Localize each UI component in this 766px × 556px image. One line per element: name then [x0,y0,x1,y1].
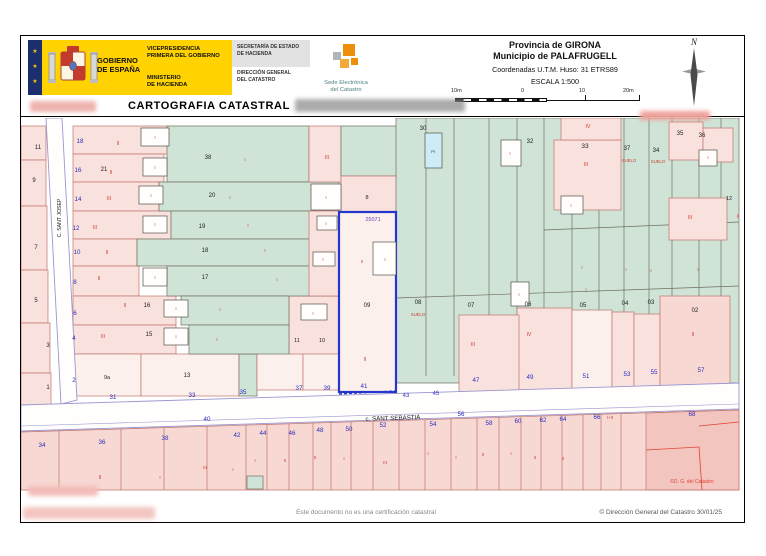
street-number-label: 34 [39,442,46,449]
street-number-label: 10 [74,249,81,256]
construction-label: I [625,267,626,272]
secretaria-estado-label: SECRETARÍA DE ESTADODE HACIENDA [232,40,310,67]
redacted-text [295,99,465,112]
parcel-ref: 25071 [365,217,380,223]
street-number-label: 48 [317,427,324,434]
construction-label: II [99,475,102,481]
street-number-label: 42 [234,432,241,439]
parcel-number-label: 08 [415,300,422,306]
construction-label: I [322,257,323,262]
street-number-label: 8 [73,279,77,286]
redacted-text [28,486,98,496]
parcel-number-label: 11 [294,338,300,344]
parcel-number-label: 16 [144,303,151,309]
construction-label: I [154,135,155,140]
parcel [257,350,303,390]
street-number-label: 57 [698,367,705,374]
construction-label: SUELO [411,312,426,317]
construction-label: II [106,250,109,256]
disclaimer-text: Este documento no es una certificación c… [276,509,456,516]
street-number-label: 40 [204,416,211,423]
cadastral-document: ★★★ GOBIERNODE ESPAÑA VICEPRESIDENCIAPRI… [0,0,766,556]
scale-bar-checkered [455,98,547,102]
construction-label: I [384,257,385,262]
parcel-number-label: 15 [146,332,153,338]
scale-bar: 10m 0 10 20m [455,88,643,106]
parcel [572,310,612,398]
construction-label: I [697,267,698,272]
construction-label: I [154,222,155,227]
gobierno-name: GOBIERNODE ESPAÑA [97,57,140,74]
construction-label: II [737,214,740,220]
copyright-text: © Dirección General del Catastro 30/01/2… [560,509,722,516]
construction-label: I [455,455,456,460]
construction-label: I [585,287,586,292]
parcel [73,266,139,296]
parcel [646,410,739,490]
parcel [634,314,660,396]
street-number-label: 62 [540,417,547,424]
street-number-label: 2 [72,377,76,384]
construction-label: I+II [607,415,613,420]
construction-label: I [229,195,230,200]
construction-label: I [254,458,255,463]
street-number-label: 37 [296,385,303,392]
street-number-label: 38 [162,435,169,442]
construction-label: II [284,458,287,463]
parcel-number-label: 03 [648,300,655,306]
scale-tick-label: 20m [623,88,634,94]
spain-flag-stars: ★★★ [28,40,42,95]
construction-label: I [175,306,176,311]
street-number-label: 66 [594,414,601,421]
parcel [73,325,176,354]
construction-label: I [159,475,160,480]
construction-label: I [343,456,344,461]
construction-label: I [312,311,313,316]
construction-label: SUELO [622,158,637,163]
construction-label: III [203,465,207,470]
street-number-label: 52 [380,422,387,429]
ministerio-label: MINISTERIODE HACIENDA [147,75,231,89]
construction-label: I [175,334,176,339]
construction-label: IV [586,124,591,130]
parcel-number-label: 07 [468,303,475,309]
parcel-number-label: 33 [581,143,589,150]
parcel-number-label: 04 [622,301,629,307]
parcel-number-label: 12 [726,196,732,202]
redacted-text [23,507,155,519]
scale-tick-label: 0 [521,88,524,94]
parcel-number-label: 21 [101,167,108,173]
construction-label: III [325,155,329,161]
construction-label: II [482,452,485,457]
parcel-number-label: 10 [319,338,325,344]
construction-label: II [562,456,565,461]
parcel [669,122,703,160]
parcel [167,126,309,182]
parcel [303,350,339,390]
parcel-number-label: 06 [525,302,532,308]
map-title-block: Provincia de GIRONA Municipio de PALAFRU… [445,40,665,86]
coordinates-label: Coordenadas U.T.M. Huso: 31 ETRS89 [445,65,665,74]
parcel [21,126,46,160]
parcel [561,196,583,214]
parcel-number-label: 9a [104,375,111,381]
street-number-label: 16 [75,167,82,174]
construction-label: I [150,193,151,198]
sede-electronica-label: Sede Electrónicadel Catastro [308,80,384,94]
construction-label: IV [527,332,532,338]
parcel-number-label: 17 [202,275,209,281]
construction-label: II [314,455,317,460]
construction-label: III [383,460,387,465]
parcel [73,296,176,325]
scale-label: ESCALA 1:500 [445,77,665,86]
construction-label: III [93,225,97,231]
parcel-number-label: 05 [580,303,587,309]
parcel-number-label: 19 [199,224,206,230]
coat-of-arms-icon [47,44,99,90]
parcel-number-label: 18 [202,248,209,254]
province-label: Provincia de GIRONA [445,40,665,50]
street-number-label: 64 [560,416,567,423]
construction-label: III [107,196,111,202]
street-number-label: 60 [515,418,522,425]
construction-label: II [110,170,113,176]
cadastral-map: C. SANT JOSEPc. SANT SEBASTIÀ25071181614… [21,118,745,498]
parcel [341,126,401,176]
construction-label: I [510,451,511,456]
parcel-number-label: 38 [205,155,212,161]
street-number-label: 58 [486,420,493,427]
parcel [21,270,48,323]
street-number-label: 51 [583,373,590,380]
parcel-number-label: 20 [209,193,216,199]
parcel [317,216,337,230]
title-separator [20,116,745,117]
construction-label: III [471,342,475,348]
street-name-josep: C. SANT JOSEP [57,198,63,237]
construction-label: I [154,165,155,170]
parcel [561,118,621,140]
street-number-label: 6 [73,310,77,317]
parcel [301,304,327,320]
parcel-number-label: 32 [527,139,534,145]
scale-tick-label: 10 [579,88,585,94]
parcel-number-label: 02 [692,308,699,314]
street-number-label: 68 [689,411,696,418]
street-number-label: 56 [458,411,465,418]
redacted-text [640,111,710,120]
street-number-label: 36 [99,439,106,446]
construction-label: I [650,268,651,273]
parcel-number-label: 8 [365,195,368,201]
construction-label: II [692,332,695,338]
parcel [313,252,335,266]
street-number-label: 31 [110,394,117,401]
parcel-number-label: 30 [420,126,427,132]
construction-label: I [276,277,277,282]
parcel-number-label: 36 [699,133,706,139]
construction-label: I [264,248,265,253]
parcel-number-label: 34 [653,148,660,154]
construction-label: II [364,357,367,363]
construction-label: I [154,275,155,280]
parcel-number-label: PI [431,150,435,154]
street-number-label: 46 [289,430,296,437]
parcel [21,206,47,270]
page-title: CARTOGRAFIA CATASTRAL [128,100,290,112]
construction-label: III [101,334,105,340]
parcel [189,325,289,354]
street-number-label: 45 [433,391,441,397]
parcel [459,315,519,400]
scale-bar-tick [585,95,586,101]
scale-bar-solid [547,100,640,102]
construction-label: III [584,162,588,168]
street-number-label: 39 [324,385,331,392]
parcel-number-label: 37 [624,146,631,152]
street-number-label: 54 [430,421,437,428]
street-number-label: 33 [189,392,196,399]
construction-label: I [247,223,248,228]
construction-label: II [117,141,120,147]
construction-label: I [570,203,571,208]
construction-label: I [325,221,326,226]
redacted-text [30,101,96,112]
parcel [517,308,572,400]
parcel [341,176,401,212]
street-number-label: 14 [75,196,82,203]
street-number-label: 47 [473,377,480,384]
parcel-number-label: 13 [184,373,191,379]
catastro-watermark: ©D. G. del Catastro [670,478,714,485]
north-label: N [684,37,704,47]
construction-label: I [707,155,708,160]
street-number-label: 49 [527,374,534,381]
vicepresidencia-label: VICEPRESIDENCIAPRIMERA DEL GOBIERNO [147,46,231,60]
construction-label: I [244,157,245,162]
parcel-number-label: 35 [677,131,684,137]
parcel-number-label: 11 [35,145,42,151]
highlighted-parcel [339,212,396,392]
parcel [669,198,727,240]
street-number-label: 12 [73,225,80,232]
construction-label: I [325,195,326,200]
scale-tick-label: 10m [451,88,462,94]
street-number-label: 18 [77,138,84,145]
street-number-label: 35 [240,389,247,396]
parcel [247,476,263,489]
street-number-label: 4 [72,335,76,342]
construction-label: I [518,292,519,297]
street-number-label: 41 [361,383,368,390]
parcel [309,126,341,182]
compass-rose-icon [681,48,707,106]
street-number-label: 50 [346,426,353,433]
parcel [181,296,289,325]
scale-bar-tick [639,95,640,101]
street-number-label: 53 [624,371,631,378]
street-number-label: 44 [260,430,267,437]
construction-label: I [581,265,582,270]
sede-electronica-icon [333,44,359,70]
direccion-general-label: DIRECCIÓN GENERALDEL CATASTRO [232,70,310,83]
municipality-label: Municipio de PALAFRUGELL [445,51,665,61]
construction-label: I [232,467,233,472]
street-number-label: 43 [403,393,411,399]
construction-label: SUELO [651,159,666,164]
construction-label: II [124,303,127,309]
construction-label: II [98,276,101,282]
construction-label: II [361,259,364,264]
parcel [612,312,634,396]
parcel [46,118,77,404]
construction-label: I [427,451,428,456]
construction-label: I [219,307,220,312]
construction-label: I [509,151,510,156]
parcel-number-label: 09 [364,303,371,309]
construction-label: I [216,337,217,342]
construction-label: III [688,215,692,221]
parcel [501,140,521,166]
construction-label: II [534,455,537,460]
street-number-label: 55 [651,369,658,376]
